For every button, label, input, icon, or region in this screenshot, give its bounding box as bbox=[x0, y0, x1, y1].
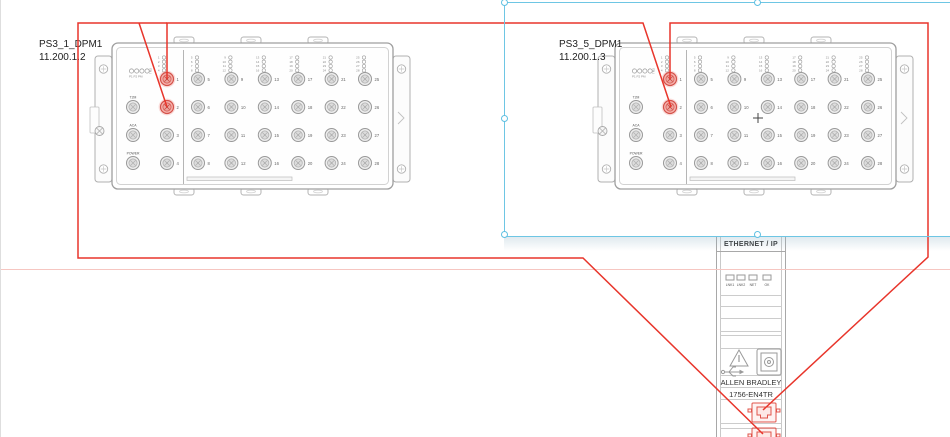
status-led bbox=[135, 69, 139, 73]
port-led bbox=[698, 69, 701, 72]
model-label: 1756-EN4TR bbox=[717, 390, 785, 399]
port-led bbox=[229, 56, 232, 59]
module-side-line bbox=[720, 237, 721, 437]
port-number: 22 bbox=[844, 105, 849, 110]
aux-port-label: T2M bbox=[633, 96, 640, 100]
port-led bbox=[865, 56, 868, 59]
module-row-line bbox=[720, 399, 782, 400]
port-led bbox=[799, 60, 802, 63]
port-led bbox=[698, 56, 701, 59]
port-led-number: 28 bbox=[356, 69, 360, 73]
device-1-label[interactable]: PS3_1_DPM1 11.200.1.2 bbox=[39, 38, 102, 64]
port-led bbox=[229, 69, 232, 72]
port-led bbox=[329, 64, 332, 67]
port-number: 25 bbox=[375, 77, 380, 82]
port-led bbox=[262, 69, 265, 72]
sd-card-icon bbox=[757, 349, 781, 375]
status-led bbox=[632, 69, 636, 73]
port-led bbox=[195, 60, 198, 63]
status-led bbox=[129, 69, 133, 73]
port-number: 14 bbox=[777, 105, 782, 110]
port-number: 19 bbox=[811, 133, 816, 138]
label-strip bbox=[690, 177, 795, 181]
port-led bbox=[698, 60, 701, 63]
port-led bbox=[665, 56, 668, 59]
port-number: 11 bbox=[241, 133, 246, 138]
led-label-net: NET bbox=[750, 283, 757, 287]
port-led bbox=[732, 64, 735, 67]
port-led bbox=[799, 64, 802, 67]
port-led bbox=[229, 64, 232, 67]
port-led bbox=[765, 60, 768, 63]
port-number: 20 bbox=[811, 161, 816, 166]
port-number: 16 bbox=[777, 161, 782, 166]
port-number: 16 bbox=[274, 161, 279, 166]
port-number: 12 bbox=[744, 161, 749, 166]
port-led bbox=[865, 69, 868, 72]
device-2-ip: 11.200.1.3 bbox=[559, 51, 622, 64]
aux-port-power[interactable] bbox=[630, 157, 643, 170]
status-led bbox=[140, 69, 144, 73]
mount-bracket-right bbox=[393, 56, 410, 182]
port-led bbox=[765, 56, 768, 59]
port-led bbox=[665, 60, 668, 63]
led-label-lnk1: LNK1 bbox=[726, 283, 735, 287]
port-led bbox=[296, 60, 299, 63]
port-led bbox=[329, 60, 332, 63]
port-number: 11 bbox=[744, 133, 749, 138]
aux-port-aca[interactable] bbox=[630, 129, 643, 142]
port-led bbox=[865, 60, 868, 63]
port-led bbox=[698, 64, 701, 67]
aux-port-t2m[interactable] bbox=[127, 101, 140, 114]
devices-layer: P1 P2 PMTM2T2MACAPOWER123412345678567891… bbox=[1, 0, 950, 437]
port-led bbox=[832, 69, 835, 72]
status-led-labels: P1 P2 PM bbox=[129, 75, 143, 79]
aux-port-label: T2M bbox=[130, 96, 137, 100]
port-number: 12 bbox=[241, 161, 246, 166]
selection-handle-bottom-mid[interactable] bbox=[754, 231, 761, 238]
label-strip bbox=[187, 177, 292, 181]
port-led bbox=[296, 56, 299, 59]
module-row-line bbox=[720, 295, 782, 296]
selection-center-marker bbox=[749, 109, 767, 127]
device-1-name: PS3_1_DPM1 bbox=[39, 38, 102, 51]
port-led bbox=[296, 69, 299, 72]
port-led bbox=[362, 56, 365, 59]
port-number: 10 bbox=[241, 105, 246, 110]
device-1-ip: 11.200.1.2 bbox=[39, 51, 102, 64]
port-led bbox=[162, 56, 165, 59]
plc-module-1756-en4tr[interactable]: ETHERNET / IP LNK1 LNK2 NET OK bbox=[716, 236, 786, 437]
port-number: 21 bbox=[341, 77, 346, 82]
port-number: 28 bbox=[878, 161, 883, 166]
module-row-line bbox=[720, 331, 782, 332]
selection-handle-bottom-left[interactable] bbox=[501, 231, 508, 238]
port-led bbox=[262, 60, 265, 63]
port-led bbox=[362, 64, 365, 67]
port-led bbox=[329, 69, 332, 72]
led-label-ok: OK bbox=[765, 283, 771, 287]
status-led bbox=[643, 69, 647, 73]
aux-port-label: ACA bbox=[130, 124, 138, 128]
port-led bbox=[799, 69, 802, 72]
port-number: 26 bbox=[878, 105, 883, 110]
port-led-number: 12 bbox=[223, 69, 227, 73]
rj45-port-2-icon[interactable] bbox=[748, 427, 782, 437]
port-led bbox=[262, 64, 265, 67]
usb-icon bbox=[721, 367, 743, 376]
port-number: 17 bbox=[811, 77, 816, 82]
device-2-name: PS3_5_DPM1 bbox=[559, 38, 622, 51]
port-led-number: 20 bbox=[289, 69, 293, 73]
side-label: TM2 bbox=[652, 68, 656, 74]
port-led bbox=[195, 56, 198, 59]
port-number: 25 bbox=[878, 77, 883, 82]
rj45-port-1-icon[interactable] bbox=[748, 402, 782, 423]
module-row-line bbox=[720, 306, 782, 307]
module-row-line bbox=[720, 387, 782, 388]
port-number: 19 bbox=[308, 133, 313, 138]
aux-port-label: ACA bbox=[633, 124, 641, 128]
brand-label: ALLEN BRADLEY bbox=[717, 378, 785, 387]
port-led bbox=[665, 64, 668, 67]
port-number: 27 bbox=[878, 133, 883, 138]
port-led bbox=[732, 69, 735, 72]
port-led bbox=[832, 64, 835, 67]
port-number: 21 bbox=[844, 77, 849, 82]
port-led-number: 16 bbox=[759, 69, 763, 73]
port-led-number: 28 bbox=[859, 69, 863, 73]
selection-handle-left-mid[interactable] bbox=[501, 115, 508, 122]
port-led bbox=[765, 64, 768, 67]
port-led bbox=[832, 56, 835, 59]
port-number: 13 bbox=[274, 77, 279, 82]
device-ps3-1-dpm1[interactable]: P1 P2 PMTM2T2MACAPOWER123412345678567891… bbox=[90, 37, 410, 195]
port-led-number: 20 bbox=[792, 69, 796, 73]
port-led bbox=[732, 56, 735, 59]
port-led bbox=[262, 56, 265, 59]
port-number: 27 bbox=[375, 133, 380, 138]
port-number: 15 bbox=[777, 133, 782, 138]
device-2-label[interactable]: PS3_5_DPM1 11.200.1.3 bbox=[559, 38, 622, 64]
port-number: 26 bbox=[375, 105, 380, 110]
port-led bbox=[732, 60, 735, 63]
port-led-number: 24 bbox=[323, 69, 327, 73]
module-icons bbox=[719, 347, 785, 377]
port-number: 23 bbox=[341, 133, 346, 138]
port-led bbox=[296, 64, 299, 67]
port-led bbox=[832, 60, 835, 63]
port-led bbox=[362, 69, 365, 72]
port-led-number: 12 bbox=[726, 69, 730, 73]
module-status-leds: LNK1 LNK2 NET OK bbox=[717, 273, 787, 291]
port-led-number: 24 bbox=[826, 69, 830, 73]
port-led bbox=[229, 60, 232, 63]
aux-port-label: POWER bbox=[127, 152, 140, 156]
aux-port-aca[interactable] bbox=[127, 129, 140, 142]
port-number: 24 bbox=[844, 161, 849, 166]
port-number: 18 bbox=[811, 105, 816, 110]
port-led bbox=[162, 60, 165, 63]
mount-bracket-right bbox=[896, 56, 913, 182]
aux-port-label: POWER bbox=[630, 152, 643, 156]
port-number: 13 bbox=[777, 77, 782, 82]
led-label-lnk2: LNK2 bbox=[737, 283, 746, 287]
port-number: 20 bbox=[308, 161, 313, 166]
port-led bbox=[865, 64, 868, 67]
port-number: 18 bbox=[308, 105, 313, 110]
status-led bbox=[638, 69, 642, 73]
port-number: 15 bbox=[274, 133, 279, 138]
port-led bbox=[162, 64, 165, 67]
port-number: 28 bbox=[375, 161, 380, 166]
port-number: 24 bbox=[341, 161, 346, 166]
port-led bbox=[765, 69, 768, 72]
ethernet-ip-header: ETHERNET / IP bbox=[717, 237, 785, 252]
port-led bbox=[362, 60, 365, 63]
aux-port-power[interactable] bbox=[127, 157, 140, 170]
module-row-line bbox=[720, 318, 782, 319]
port-number: 17 bbox=[308, 77, 313, 82]
port-led-number: 16 bbox=[256, 69, 260, 73]
module-row-line bbox=[720, 335, 782, 336]
diagram-canvas[interactable]: P1 P2 PMTM2T2MACAPOWER123412345678567891… bbox=[0, 0, 950, 437]
port-number: 14 bbox=[274, 105, 279, 110]
aux-port-t2m[interactable] bbox=[630, 101, 643, 114]
port-led bbox=[329, 56, 332, 59]
port-led bbox=[799, 56, 802, 59]
port-led bbox=[195, 64, 198, 67]
port-number: 23 bbox=[844, 133, 849, 138]
port-led bbox=[195, 69, 198, 72]
side-label: TM2 bbox=[149, 68, 153, 74]
status-led-labels: P1 P2 PM bbox=[632, 75, 646, 79]
port-number: 22 bbox=[341, 105, 346, 110]
